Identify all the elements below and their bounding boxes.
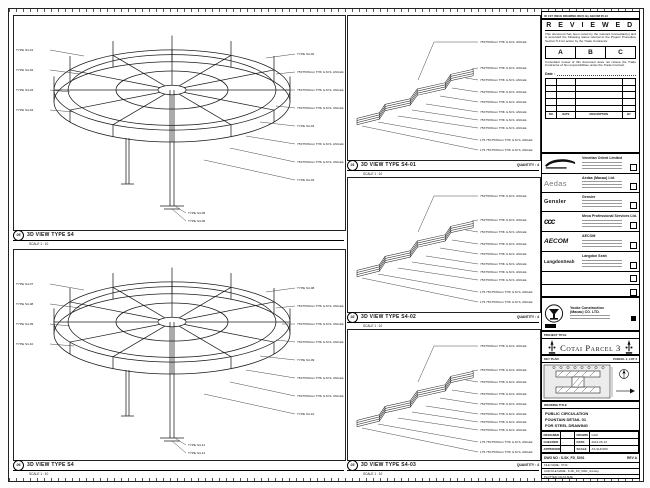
leader-lines xyxy=(50,50,295,221)
address-lines xyxy=(582,181,622,189)
svg-text:TYPE S4-03: TYPE S4-03 xyxy=(16,88,33,92)
svg-text:TYPE S4-09: TYPE S4-09 xyxy=(297,358,314,362)
revision-row xyxy=(546,85,635,92)
aecom-logo: AECOM xyxy=(544,238,580,245)
svg-text:75X75X6mm THK G.M.S. ANGLE: 75X75X6mm THK G.M.S. ANGLE xyxy=(480,110,527,114)
address-lines xyxy=(582,162,622,170)
address-lines xyxy=(582,220,622,228)
approved-label: APPROVED xyxy=(542,446,561,453)
issue-info-block: DESIGNED - DRAWN CAD CHECKED - DATE 2013… xyxy=(541,431,640,479)
consultant-row-langdon-seah: LangdonSeah Langdon Seah xyxy=(542,252,639,272)
consultant-row-gensler: Gensler Gensler xyxy=(542,193,639,212)
drawing-title-text: PUBLIC CIRCULATION FOUNTAIN DETAIL 01 FO… xyxy=(542,409,639,430)
panel-3d-view-s4-02: 75X75X6mm THK G.M.S. ANGLE 75X75X6mm THK… xyxy=(347,177,541,313)
drawing-title-block: DRAWING TITLE PUBLIC CIRCULATION FOUNTAI… xyxy=(541,401,640,431)
view-scale: SCALE 1 : 10 xyxy=(363,472,382,476)
view-title-text: 3D VIEW TYPE S4-03 xyxy=(361,462,416,468)
svg-text:TYPE S4-08: TYPE S4-08 xyxy=(297,286,314,290)
consultant-row-empty xyxy=(542,272,639,285)
drawn-label: DRAWN xyxy=(575,432,590,439)
date-fill-line xyxy=(557,71,636,76)
quantity-note: QUANTITY : 4 xyxy=(517,163,539,167)
scale-value: AS SHOWN xyxy=(590,446,639,453)
quantity-note: QUANTITY : 4 xyxy=(517,315,539,319)
svg-text:75X75X6mm THK G.M.S. ANGLE: 75X75X6mm THK G.M.S. ANGLE xyxy=(297,70,344,74)
view-scale: SCALE 1 : 10 xyxy=(29,472,48,476)
svg-text:TYPE S4-03: TYPE S4-03 xyxy=(297,124,314,128)
detail-number: 02 xyxy=(351,315,355,319)
status-grade-row: A B C xyxy=(545,46,636,59)
view-scale: SCALE 1 : 10 xyxy=(363,172,382,176)
leader-lines xyxy=(362,346,478,452)
svg-text:75X75X6mm THK G.M.S. ANGLE: 75X75X6mm THK G.M.S. ANGLE xyxy=(480,270,527,274)
view-title-a: 05 3D VIEW TYPE S4 xyxy=(13,230,344,241)
consultant-name: Gensler xyxy=(582,196,637,200)
checked-value: - xyxy=(561,439,575,446)
gensler-logo: Gensler xyxy=(544,199,580,205)
view-scale: SCALE 1 : 10 xyxy=(29,242,48,246)
svg-text:TYPE S4-02: TYPE S4-02 xyxy=(16,68,33,72)
svg-text:L75 75X75X6mm THK G.M.S. ANGLE: L75 75X75X6mm THK G.M.S. ANGLE xyxy=(480,148,533,152)
panel-3d-view-s4-03: 75X75X6mm THK G.M.S. ANGLE 75X75X6mm THK… xyxy=(347,329,541,461)
designed-label: DESIGNED xyxy=(542,432,561,439)
svg-text:75X75X6mm THK G.M.S. ANGLE: 75X75X6mm THK G.M.S. ANGLE xyxy=(480,420,527,424)
checkbox-icon xyxy=(630,242,637,249)
svg-text:TYPE S4-05: TYPE S4-05 xyxy=(188,211,205,215)
stamp-date-row: Date : xyxy=(545,71,636,76)
svg-text:75X75X6mm THK G.M.S. ANGLE: 75X75X6mm THK G.M.S. ANGLE xyxy=(480,218,527,222)
panel-3d-view-s4-01: 75X75X6mm THK G.M.S. ANGLE 75X75X6mm THK… xyxy=(347,15,541,161)
svg-text:75X75X6mm THK G.M.S. ANGLE: 75X75X6mm THK G.M.S. ANGLE xyxy=(297,322,344,326)
detail-bubble: 01 xyxy=(347,160,358,171)
key-plan-band: KEY PLAN PARCEL 1, LOT 3 xyxy=(542,356,639,363)
drawing-title-band-label: DRAWING TITLE xyxy=(544,402,567,408)
approved-value: - xyxy=(561,446,575,453)
dwg-no-value: DWG NO : S-SK_FD_S001 xyxy=(544,454,585,462)
consultant-row-venetian: Venetian Orient Limited xyxy=(542,154,639,174)
svg-text:75X75X6mm THK G.M.S. ANGLE: 75X75X6mm THK G.M.S. ANGLE xyxy=(480,402,527,406)
revision-table: NO.DATE DESCRIPTIONBY xyxy=(545,78,636,119)
date-value: 2013-05-13 xyxy=(590,439,639,446)
scale-label: SCALE xyxy=(575,446,590,453)
revision-header-row: NO.DATE DESCRIPTIONBY xyxy=(546,111,635,118)
checked-label: CHECKED xyxy=(542,439,561,446)
key-plan-thumbnail xyxy=(542,363,639,401)
svg-text:75X75X6mm THK G.M.S. ANGLE: 75X75X6mm THK G.M.S. ANGLE xyxy=(297,376,344,380)
svg-text:75X75X6mm THK G.M.S. ANGLE: 75X75X6mm THK G.M.S. ANGLE xyxy=(297,304,344,308)
svg-text:L75 75X75X6mm THK G.M.S. ANGLE: L75 75X75X6mm THK G.M.S. ANGLE xyxy=(480,300,533,304)
quantity-note: QUANTITY : 4 xyxy=(517,463,539,467)
leader-labels: TYPE S4-02 75X75X6mm THK G.M.S. ANGLE 75… xyxy=(16,48,344,223)
date-label: DATE xyxy=(575,439,590,446)
svg-text:TYPE S4-07: TYPE S4-07 xyxy=(16,282,33,286)
svg-text:L75 75X75X6mm THK G.M.S. ANGLE: L75 75X75X6mm THK G.M.S. ANGLE xyxy=(480,450,533,454)
svg-text:75X75X6mm THK G.M.S. ANGLE: 75X75X6mm THK G.M.S. ANGLE xyxy=(480,278,527,282)
svg-text:75X75X6mm THK G.M.S. ANGLE: 75X75X6mm THK G.M.S. ANGLE xyxy=(480,368,527,372)
svg-text:75X75X6mm THK G.M.S. ANGLE: 75X75X6mm THK G.M.S. ANGLE xyxy=(297,340,344,344)
checkbox-icon xyxy=(630,164,637,171)
consultant-row-aecom: AECOM AECOM xyxy=(542,232,639,252)
svg-text:L75 75X75X6mm THK G.M.S. ANGLE: L75 75X75X6mm THK G.M.S. ANGLE xyxy=(480,138,533,142)
view-scale: SCALE 1 : 10 xyxy=(363,324,382,328)
dwg-no-row: DWG NO : S-SK_FD_S001 REV A xyxy=(542,454,639,463)
consultant-name: Langdon Seah xyxy=(582,255,637,259)
date-label: Date : xyxy=(545,72,555,76)
contractor-chip xyxy=(545,324,556,328)
dome-structure-drawing: TYPE S4-08 75X75X6mm THK G.M.S. ANGLE 75… xyxy=(14,250,345,460)
project-title-text: Cotai Parcel 3 xyxy=(560,343,621,353)
consultant-name: Meca Professional Services Ltd. xyxy=(582,215,637,219)
detail-number: 03 xyxy=(351,463,355,467)
contractor-logo-icon xyxy=(544,304,568,324)
svg-text:75X75X6mm THK G.M.S. ANGLE: 75X75X6mm THK G.M.S. ANGLE xyxy=(480,428,527,432)
svg-text:TYPE S4-12: TYPE S4-12 xyxy=(188,451,205,455)
svg-text:75X75X6mm THK G.M.S. ANGLE: 75X75X6mm THK G.M.S. ANGLE xyxy=(480,90,527,94)
beam-assembly-drawing: 75X75X6mm THK G.M.S. ANGLE 75X75X6mm THK… xyxy=(348,178,540,312)
revision-row xyxy=(546,105,635,112)
view-title-b: 06 3D VIEW TYPE S4 xyxy=(13,460,344,471)
project-title-row: Cotai Parcel 3 xyxy=(542,339,639,356)
tower-ornament-icon xyxy=(625,340,633,355)
svg-text:TYPE S4-11: TYPE S4-11 xyxy=(188,443,205,447)
key-plan-block: KEY PLAN PARCEL 1, LOT 3 xyxy=(541,355,640,401)
consultant-block: Venetian Orient Limited Aedas Aedas (Mac… xyxy=(541,153,640,297)
grade-c: C xyxy=(606,47,635,58)
svg-text:TYPE S4-10: TYPE S4-10 xyxy=(16,342,33,346)
svg-text:TYPE S4-01: TYPE S4-01 xyxy=(16,48,33,52)
drawing-sheet: TYPE S4-02 75X75X6mm THK G.M.S. ANGLE 75… xyxy=(8,8,644,482)
view-title-text: 3D VIEW TYPE S4 xyxy=(27,232,74,238)
issue-info-table: DESIGNED - DRAWN CAD CHECKED - DATE 2013… xyxy=(542,432,639,454)
svg-text:TYPE S4-04: TYPE S4-04 xyxy=(297,178,314,182)
consultant-row-meca: ccc Meca Professional Services Ltd. xyxy=(542,212,639,232)
detail-number: 05 xyxy=(17,233,21,237)
checkbox-icon xyxy=(630,275,637,282)
designed-value: - xyxy=(561,432,575,439)
checkbox-icon xyxy=(630,202,637,209)
svg-text:75X75X6mm THK G.M.S. ANGLE: 75X75X6mm THK G.M.S. ANGLE xyxy=(480,66,527,70)
svg-text:75X75X6mm THK G.M.S. ANGLE: 75X75X6mm THK G.M.S. ANGLE xyxy=(480,242,527,246)
svg-text:75X75X6mm THK G.M.S. ANGLE: 75X75X6mm THK G.M.S. ANGLE xyxy=(480,344,527,348)
svg-text:75X75X6mm THK G.M.S. ANGLE: 75X75X6mm THK G.M.S. ANGLE xyxy=(480,100,527,104)
revision-row xyxy=(546,91,635,98)
svg-text:75X75X6mm THK G.M.S. ANGLE: 75X75X6mm THK G.M.S. ANGLE xyxy=(480,194,527,198)
drawing-title-line: FOR STEEL DRAWING xyxy=(545,423,636,429)
svg-text:TYPE S4-04: TYPE S4-04 xyxy=(16,108,33,112)
checkbox-icon xyxy=(630,262,637,269)
consultant-row-aedas: Aedas Aedas (Macau) Ltd. xyxy=(542,174,639,193)
svg-text:TYPE S4-09: TYPE S4-09 xyxy=(16,322,33,326)
grade-a: A xyxy=(546,47,576,58)
leader-labels: 75X75X6mm THK G.M.S. ANGLE 75X75X6mm THK… xyxy=(480,40,533,152)
project-title-block: PROJECT TITLE Cotai Parcel 3 xyxy=(541,331,640,355)
consultant-name: Aedas (Macau) Ltd. xyxy=(582,177,637,181)
svg-text:TYPE S4-02: TYPE S4-02 xyxy=(297,52,314,56)
key-plan-band-label: KEY PLAN xyxy=(544,356,559,362)
svg-text:75X75X6mm THK G.M.S. ANGLE: 75X75X6mm THK G.M.S. ANGLE xyxy=(480,380,527,384)
detail-bubble: 05 xyxy=(13,230,24,241)
contractor-stamp-square xyxy=(631,316,636,321)
svg-text:75X75X6mm THK G.M.S. ANGLE: 75X75X6mm THK G.M.S. ANGLE xyxy=(480,126,527,130)
stamp-body-1: This document has been noted by the rele… xyxy=(545,33,636,45)
view-title-m2: 02 3D VIEW TYPE S4-02 QUANTITY : 4 xyxy=(347,312,539,323)
project-title-band-label: PROJECT TITLE xyxy=(544,332,566,338)
drawing-title-band: DRAWING TITLE xyxy=(542,402,639,409)
contractor-name-line2: (Macau) CO. LTD. xyxy=(570,311,637,315)
address-lines xyxy=(582,200,622,208)
aedas-logo: Aedas xyxy=(544,179,580,188)
detail-bubble: 02 xyxy=(347,312,358,323)
detail-number: 01 xyxy=(351,163,355,167)
svg-text:75X75X6mm THK G.M.S. ANGLE: 75X75X6mm THK G.M.S. ANGLE xyxy=(480,118,527,122)
leader-labels: TYPE S4-08 75X75X6mm THK G.M.S. ANGLE 75… xyxy=(16,282,344,455)
svg-text:75X75X6mm THK G.M.S. ANGLE: 75X75X6mm THK G.M.S. ANGLE xyxy=(480,78,527,82)
svg-text:75X75X6mm THK G.M.S. ANGLE: 75X75X6mm THK G.M.S. ANGLE xyxy=(297,106,344,110)
leader-labels: 75X75X6mm THK G.M.S. ANGLE 75X75X6mm THK… xyxy=(480,344,533,454)
consultant-name: AECOM xyxy=(582,235,637,239)
checkbox-icon xyxy=(630,183,637,190)
svg-text:75X75X6mm THK G.M.S. ANGLE: 75X75X6mm THK G.M.S. ANGLE xyxy=(480,392,527,396)
svg-text:L75 75X75X6mm THK G.M.S. ANGLE: L75 75X75X6mm THK G.M.S. ANGLE xyxy=(480,290,533,294)
project-title-band: PROJECT TITLE xyxy=(542,332,639,339)
panel-3d-view-s4-bottom: TYPE S4-08 75X75X6mm THK G.M.S. ANGLE 75… xyxy=(13,249,346,461)
grade-b: B xyxy=(576,47,606,58)
contractor-block: Yooke Construction (Macau) CO. LTD. xyxy=(541,297,640,331)
beam-assembly-drawing: 75X75X6mm THK G.M.S. ANGLE 75X75X6mm THK… xyxy=(348,330,540,460)
checkbox-icon xyxy=(630,289,637,296)
stamp-body-2: Consultant review of this document does … xyxy=(545,61,636,69)
beam-assembly-drawing: 75X75X6mm THK G.M.S. ANGLE 75X75X6mm THK… xyxy=(348,16,540,160)
rev-value: REV A xyxy=(627,454,637,462)
detail-bubble: 06 xyxy=(13,460,24,471)
view-title-m1: 01 3D VIEW TYPE S4-01 QUANTITY : 4 xyxy=(347,160,539,171)
plotted-row: PLOTTED ON A3 SIZE xyxy=(542,475,639,480)
address-lines xyxy=(582,240,622,248)
view-title-m3: 03 3D VIEW TYPE S4-03 QUANTITY : 4 xyxy=(347,460,539,471)
address-lines xyxy=(582,260,622,268)
svg-text:75X75X6mm THK G.M.S. ANGLE: 75X75X6mm THK G.M.S. ANGLE xyxy=(297,394,344,398)
stamp-title: R E V I E W E D xyxy=(545,22,636,31)
svg-text:TYPE S4-06: TYPE S4-06 xyxy=(188,219,205,223)
leader-lines xyxy=(362,42,478,150)
dome-structure-drawing: TYPE S4-02 75X75X6mm THK G.M.S. ANGLE 75… xyxy=(14,16,345,230)
revision-row xyxy=(546,79,635,85)
panel-3d-view-s4-top: TYPE S4-02 75X75X6mm THK G.M.S. ANGLE 75… xyxy=(13,15,346,231)
key-plan-zone-label: PARCEL 1, LOT 3 xyxy=(613,356,637,362)
svg-text:75X75X6mm THK G.M.S. ANGLE: 75X75X6mm THK G.M.S. ANGLE xyxy=(480,40,527,44)
svg-text:75X75X6mm THK G.M.S. ANGLE: 75X75X6mm THK G.M.S. ANGLE xyxy=(480,412,527,416)
consultant-name: Venetian Orient Limited xyxy=(582,157,637,161)
revision-row xyxy=(546,98,635,105)
svg-text:75X75X6mm THK G.M.S. ANGLE: 75X75X6mm THK G.M.S. ANGLE xyxy=(480,230,527,234)
svg-text:TYPE S4-10: TYPE S4-10 xyxy=(297,412,314,416)
svg-text:75X75X6mm THK G.M.S. ANGLE: 75X75X6mm THK G.M.S. ANGLE xyxy=(297,142,344,146)
svg-text:75X75X6mm THK G.M.S. ANGLE: 75X75X6mm THK G.M.S. ANGLE xyxy=(297,88,344,92)
svg-text:TYPE S4-08: TYPE S4-08 xyxy=(16,302,33,306)
view-title-text: 3D VIEW TYPE S4-02 xyxy=(361,314,416,320)
detail-number: 06 xyxy=(17,463,21,467)
svg-text:75X75X6mm THK G.M.S. ANGLE: 75X75X6mm THK G.M.S. ANGLE xyxy=(480,252,527,256)
north-arrow-icon xyxy=(620,370,629,379)
revision-strip: 00 1ST ISSUE DRAWING REV1 By AECOM 05.13 xyxy=(541,11,640,19)
svg-text:75X75X6mm THK G.M.S. ANGLE: 75X75X6mm THK G.M.S. ANGLE xyxy=(297,160,344,164)
leader-lines xyxy=(50,284,295,453)
checkbox-icon xyxy=(630,222,637,229)
tower-ornament-icon xyxy=(548,340,556,355)
view-title-text: 3D VIEW TYPE S4-01 xyxy=(361,162,416,168)
detail-bubble: 03 xyxy=(347,460,358,471)
meca-logo: ccc xyxy=(544,217,580,226)
svg-text:L75 75X75X6mm THK G.M.S. ANGLE: L75 75X75X6mm THK G.M.S. ANGLE xyxy=(480,440,533,444)
address-lines xyxy=(570,315,610,321)
view-title-text: 3D VIEW TYPE S4 xyxy=(27,462,74,468)
reviewed-stamp: R E V I E W E D This document has been n… xyxy=(541,19,640,153)
langdon-seah-logo: LangdonSeah xyxy=(544,259,580,264)
svg-text:75X75X6mm THK G.M.S. ANGLE: 75X75X6mm THK G.M.S. ANGLE xyxy=(480,262,527,266)
contractor-row: Yooke Construction (Macau) CO. LTD. xyxy=(542,298,639,330)
section-arrow-icon xyxy=(616,389,635,394)
leader-labels: 75X75X6mm THK G.M.S. ANGLE 75X75X6mm THK… xyxy=(480,194,533,304)
venetian-logo xyxy=(544,157,580,170)
drawn-value: CAD xyxy=(590,432,639,439)
leader-lines xyxy=(362,196,478,302)
